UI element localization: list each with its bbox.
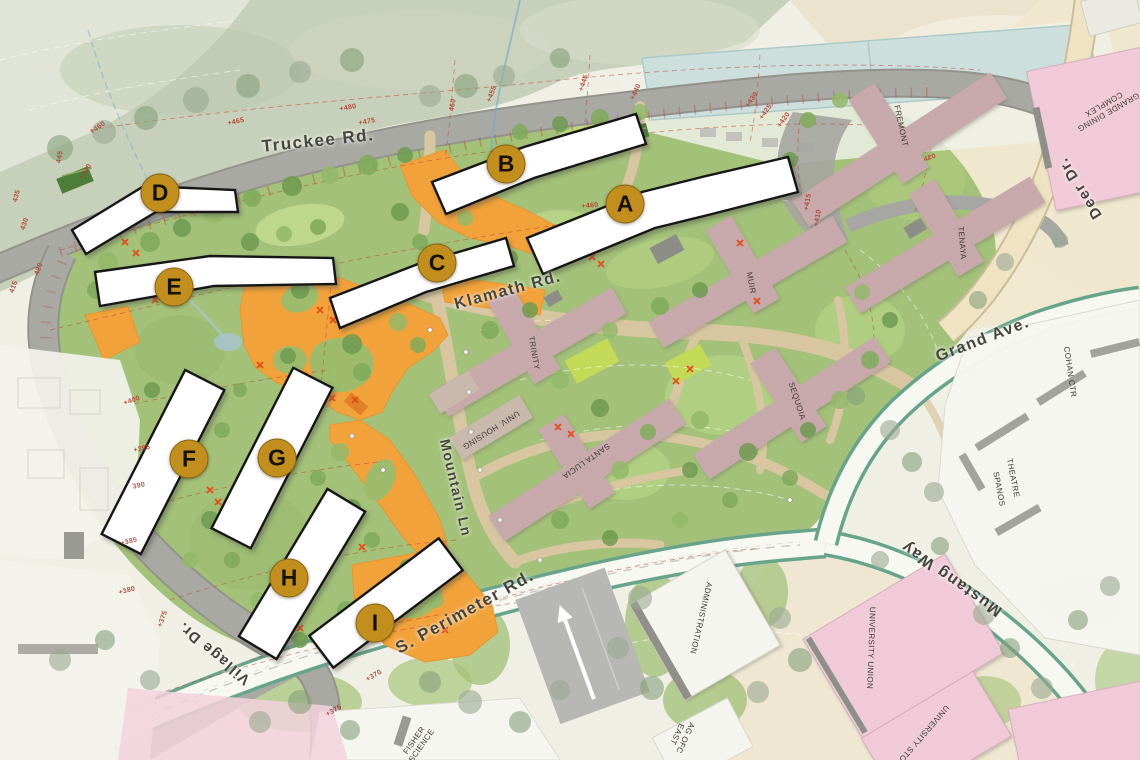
campus-site-plan: ABCDEFGHITruckee Rd.Klamath Rd.Mountain … (0, 0, 1140, 760)
site-plan-art (0, 0, 1140, 760)
